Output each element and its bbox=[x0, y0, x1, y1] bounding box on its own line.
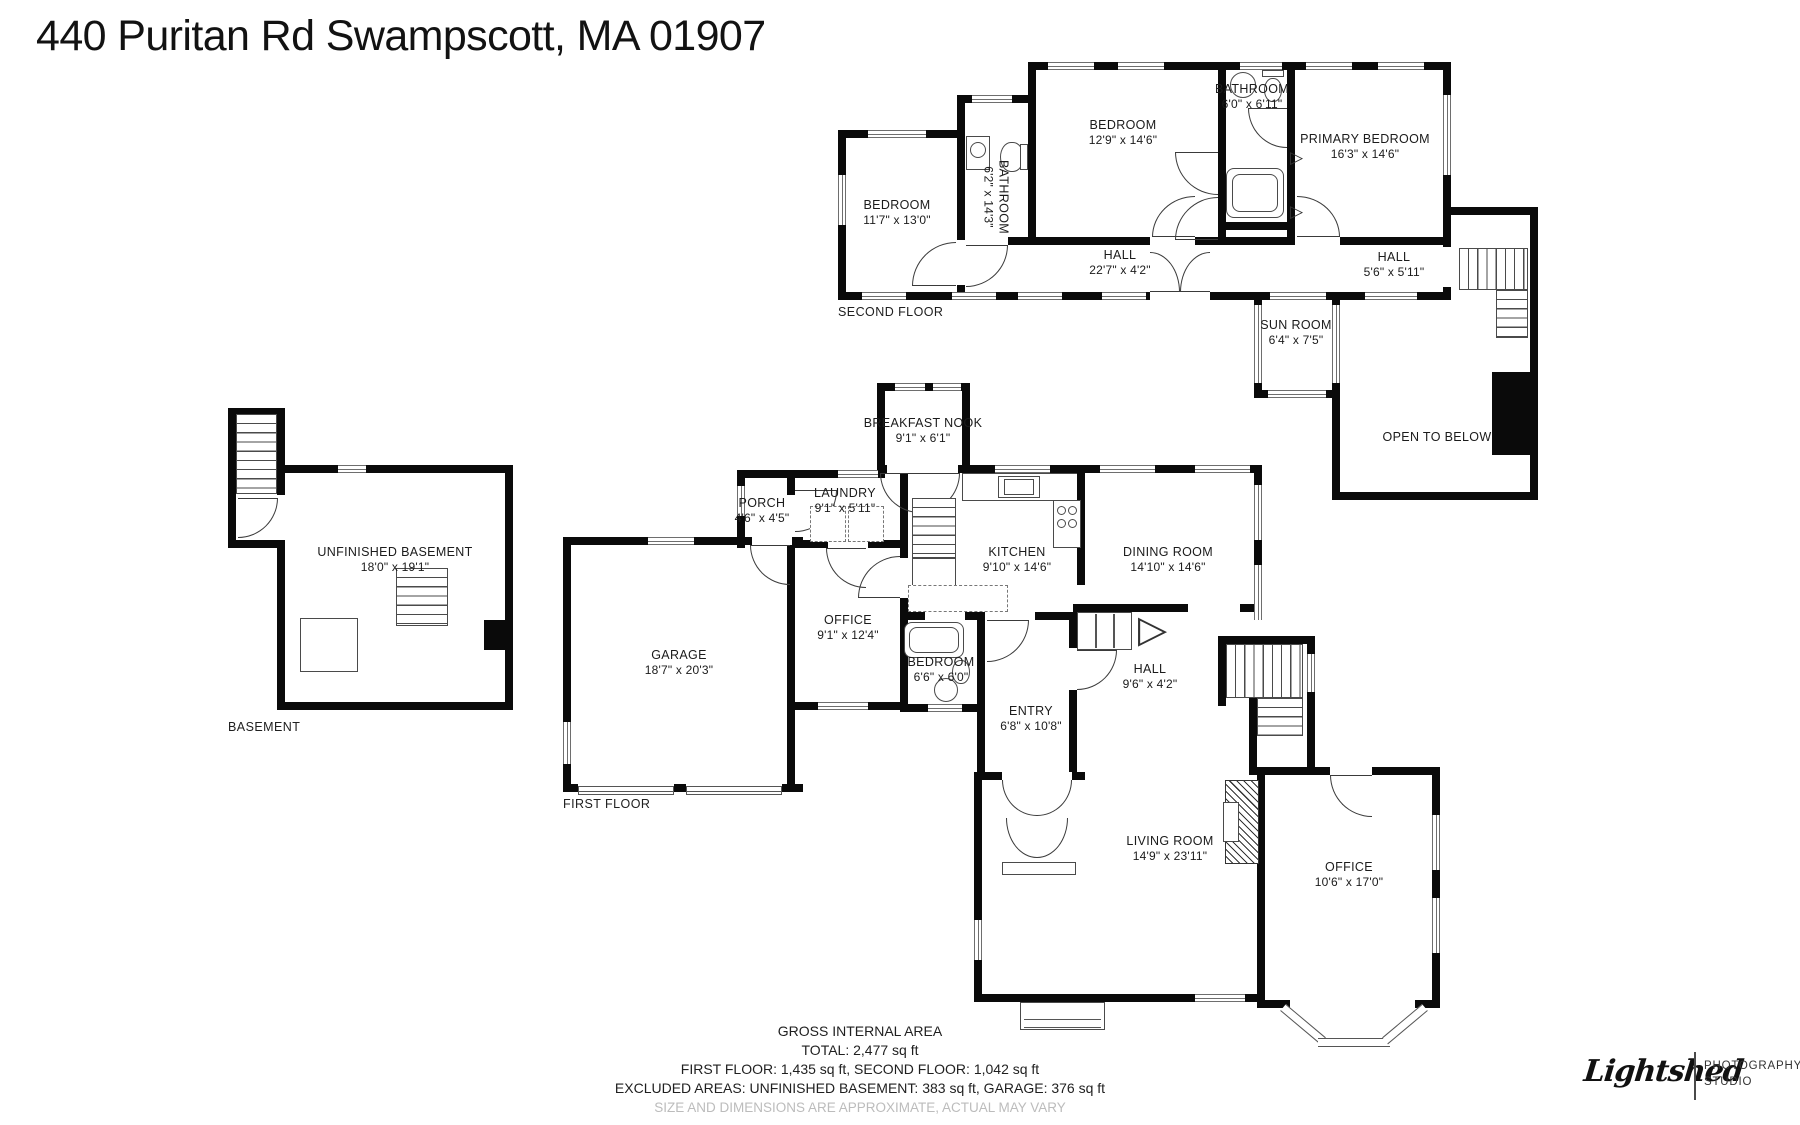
stairs-icon bbox=[1226, 644, 1303, 698]
door-opening bbox=[965, 237, 1008, 245]
counter-dashed bbox=[908, 585, 1008, 612]
window bbox=[1443, 95, 1451, 175]
door-opening bbox=[900, 558, 908, 598]
closet-shelves bbox=[1077, 612, 1132, 650]
bay-window bbox=[1318, 1038, 1390, 1047]
area-summary-title: GROSS INTERNAL AREA bbox=[520, 1022, 1200, 1041]
window bbox=[862, 292, 906, 300]
door-opening bbox=[1150, 292, 1210, 300]
window bbox=[1378, 62, 1424, 70]
window bbox=[1240, 62, 1282, 70]
wall bbox=[1249, 698, 1257, 775]
door-opening bbox=[1290, 1000, 1415, 1008]
double-door-arc bbox=[1150, 252, 1180, 292]
wall bbox=[228, 408, 236, 548]
area-summary-excluded: EXCLUDED AREAS: UNFINISHED BASEMENT: 383… bbox=[520, 1079, 1200, 1098]
room-label-bedroom: BEDROOM 12'9" x 14'6" bbox=[1089, 118, 1157, 147]
door-opening bbox=[985, 612, 1035, 620]
stove-burner-icon bbox=[1057, 506, 1066, 515]
window bbox=[563, 722, 571, 764]
window bbox=[1365, 292, 1417, 300]
wall bbox=[1218, 222, 1295, 230]
room-label-garage: GARAGE 18'7" x 20'3" bbox=[645, 648, 713, 677]
door-arc bbox=[1077, 650, 1117, 690]
window bbox=[1254, 485, 1262, 540]
wall bbox=[974, 772, 982, 1002]
window bbox=[1048, 62, 1094, 70]
logo-tagline: PHOTOGRAPHY STUDIO bbox=[1704, 1058, 1800, 1090]
wall bbox=[1335, 492, 1538, 500]
window bbox=[933, 383, 961, 391]
room-label-bathroom: BATHROOM 6'0" x 6'11" bbox=[1215, 82, 1289, 111]
room-label-sun-room: SUN ROOM 6'4" x 7'5" bbox=[1260, 318, 1332, 347]
stairs-icon bbox=[1257, 698, 1303, 736]
window bbox=[1432, 815, 1440, 870]
window bbox=[1268, 390, 1326, 398]
window bbox=[1102, 292, 1146, 300]
room-label-bathroom: BATHROOM 6'2" x 14'3" bbox=[982, 160, 1011, 234]
garage-door bbox=[686, 786, 782, 795]
door-opening bbox=[1443, 247, 1451, 287]
wall bbox=[1073, 604, 1188, 612]
stove-burner-icon bbox=[1057, 519, 1066, 528]
wall bbox=[277, 408, 285, 473]
door-arc bbox=[238, 498, 278, 538]
window bbox=[1307, 654, 1315, 692]
garage-door bbox=[578, 786, 674, 795]
toilet-icon bbox=[1020, 144, 1028, 170]
window bbox=[1195, 465, 1250, 473]
stairs-icon bbox=[236, 414, 277, 494]
wall bbox=[977, 612, 985, 780]
window bbox=[1432, 898, 1440, 953]
chimney bbox=[1492, 372, 1530, 455]
stove-burner-icon bbox=[1068, 519, 1077, 528]
window bbox=[895, 383, 925, 391]
window bbox=[972, 95, 1012, 103]
window bbox=[868, 130, 926, 138]
window bbox=[928, 704, 962, 712]
wall bbox=[1218, 636, 1226, 706]
room-label-porch: PORCH 4'6" x 4'5" bbox=[735, 496, 790, 525]
window bbox=[952, 292, 996, 300]
window bbox=[1270, 292, 1326, 300]
bathtub-icon bbox=[909, 627, 959, 653]
label-open-to-below: OPEN TO BELOW bbox=[1383, 430, 1492, 444]
room-label-laundry: LAUNDRY 9'1" x 5'11" bbox=[814, 486, 876, 515]
window bbox=[1254, 565, 1262, 620]
bay-window bbox=[1382, 1004, 1428, 1044]
door-opening bbox=[1002, 772, 1072, 780]
door-arc bbox=[912, 242, 956, 286]
door-opening bbox=[277, 495, 285, 540]
door-opening bbox=[887, 465, 958, 473]
room-label-hall: HALL 22'7" x 4'2" bbox=[1089, 248, 1151, 277]
window bbox=[1332, 305, 1340, 383]
area-summary-floors: FIRST FLOOR: 1,435 sq ft, SECOND FLOOR: … bbox=[520, 1060, 1200, 1079]
floor-label-first: FIRST FLOOR bbox=[563, 797, 650, 811]
stove-burner-icon bbox=[1068, 506, 1077, 515]
stairs-icon bbox=[396, 568, 448, 626]
window bbox=[1195, 994, 1245, 1002]
room-label-unfinished-basement: UNFINISHED BASEMENT 18'0" x 19'1" bbox=[317, 545, 472, 574]
window bbox=[995, 465, 1050, 473]
bifold-door-icon: ▷ bbox=[1138, 610, 1167, 648]
kitchen-sink-icon bbox=[1004, 479, 1034, 495]
front-door-arc bbox=[1006, 818, 1068, 858]
front-door-arc bbox=[1002, 780, 1072, 816]
stairs-icon bbox=[1496, 290, 1528, 338]
room-label-dining-room: DINING ROOM 14'10" x 14'6" bbox=[1123, 545, 1213, 574]
room-label-office: OFFICE 9'1" x 12'4" bbox=[817, 613, 879, 642]
room-label-bedroom: BEDROOM 11'7" x 13'0" bbox=[863, 198, 931, 227]
room-label-living-room: LIVING ROOM 14'9" x 23'11" bbox=[1126, 834, 1213, 863]
window bbox=[1118, 62, 1164, 70]
window bbox=[1100, 465, 1155, 473]
logo-divider bbox=[1694, 1052, 1696, 1100]
door-opening bbox=[1295, 237, 1340, 245]
utility-box bbox=[300, 618, 358, 672]
door-arc bbox=[1330, 775, 1372, 817]
stairs-icon bbox=[1459, 248, 1528, 290]
wall bbox=[1249, 767, 1321, 775]
closet-shelves bbox=[1113, 614, 1115, 648]
wall bbox=[1451, 207, 1538, 215]
window bbox=[338, 465, 366, 473]
wall bbox=[838, 292, 1344, 300]
window bbox=[1306, 62, 1352, 70]
wall bbox=[277, 702, 513, 710]
room-label-hall: HALL 9'6" x 4'2" bbox=[1123, 662, 1178, 691]
area-summary-disclaimer: SIZE AND DIMENSIONS ARE APPROXIMATE, ACT… bbox=[520, 1098, 1200, 1117]
area-summary: GROSS INTERNAL AREA TOTAL: 2,477 sq ft F… bbox=[520, 1022, 1200, 1117]
room-label-kitchen: KITCHEN 9'10" x 14'6" bbox=[983, 545, 1051, 574]
floor-label-basement: BASEMENT bbox=[228, 720, 300, 734]
door-opening bbox=[752, 537, 792, 545]
sink-icon bbox=[970, 142, 986, 158]
floor-plan-canvas: 440 Puritan Rd Swampscott, MA 01907 bbox=[0, 0, 1800, 1125]
room-label-primary-bedroom: PRIMARY BEDROOM 16'3" x 14'6" bbox=[1300, 132, 1430, 161]
closet-shelves bbox=[1095, 614, 1097, 648]
area-summary-total: TOTAL: 2,477 sq ft bbox=[520, 1041, 1200, 1060]
toilet-icon bbox=[1262, 70, 1284, 77]
bathtub-icon bbox=[1232, 174, 1278, 212]
page-title: 440 Puritan Rd Swampscott, MA 01907 bbox=[36, 12, 766, 61]
stairs-icon bbox=[912, 498, 956, 558]
door-arc bbox=[1297, 196, 1340, 237]
door-opening bbox=[1330, 767, 1372, 775]
entry-step bbox=[1002, 862, 1076, 875]
room-label-bedroom: BEDROOM 6'6" x 6'0" bbox=[907, 655, 974, 684]
window bbox=[648, 537, 694, 545]
window bbox=[838, 470, 878, 478]
wall bbox=[1218, 636, 1315, 644]
wall bbox=[277, 465, 513, 473]
wall bbox=[1069, 612, 1077, 780]
room-label-entry: ENTRY 6'8" x 10'8" bbox=[1000, 704, 1062, 733]
door-arc bbox=[1248, 108, 1287, 148]
room-label-hall: HALL 5'6" x 5'11" bbox=[1364, 250, 1425, 279]
room-label-office: OFFICE 10'6" x 17'0" bbox=[1315, 860, 1383, 889]
door-opening bbox=[1069, 648, 1077, 690]
bifold-door-icon: ▷ bbox=[1290, 204, 1303, 221]
window bbox=[818, 702, 868, 710]
double-door-arc bbox=[1180, 252, 1210, 292]
wall bbox=[1530, 207, 1538, 500]
wall bbox=[1432, 767, 1440, 1008]
chimney bbox=[484, 620, 513, 650]
closet-door-arc bbox=[1175, 152, 1218, 195]
wall bbox=[505, 465, 513, 710]
window bbox=[838, 175, 846, 225]
floor-label-second: SECOND FLOOR bbox=[838, 305, 943, 319]
room-label-breakfast-nook: BREAKFAST NOOK 9'1" x 6'1" bbox=[864, 416, 983, 445]
door-arc bbox=[987, 620, 1029, 662]
door-arc bbox=[750, 545, 790, 585]
door-opening bbox=[925, 612, 965, 620]
door-opening bbox=[957, 240, 965, 285]
wall bbox=[1028, 62, 1036, 245]
window bbox=[974, 920, 982, 960]
window bbox=[1018, 292, 1062, 300]
fireplace-icon bbox=[1223, 802, 1239, 842]
door-arc bbox=[966, 245, 1008, 287]
